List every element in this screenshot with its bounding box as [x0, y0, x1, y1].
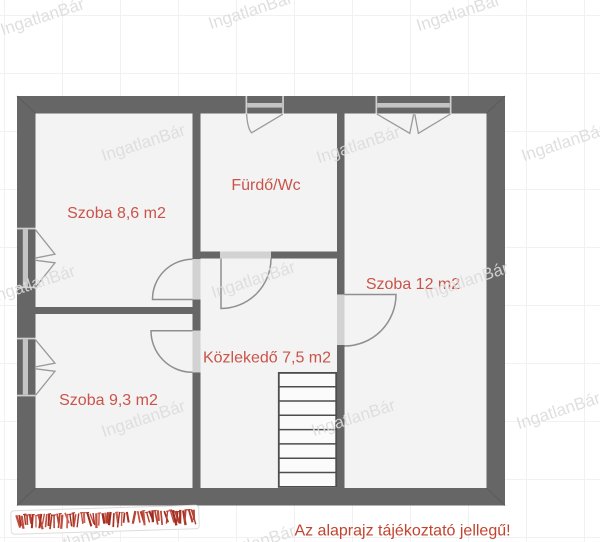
svg-text:Fürdő/Wc: Fürdő/Wc [231, 177, 300, 194]
svg-text:Közlekedő 7,5 m2: Közlekedő 7,5 m2 [203, 350, 331, 367]
svg-text:Szoba 8,6 m2: Szoba 8,6 m2 [67, 205, 166, 222]
svg-text:Szoba 9,3 m2: Szoba 9,3 m2 [59, 392, 158, 409]
svg-text:Az alaprajz tájékoztató jelleg: Az alaprajz tájékoztató jellegű! [294, 523, 510, 540]
